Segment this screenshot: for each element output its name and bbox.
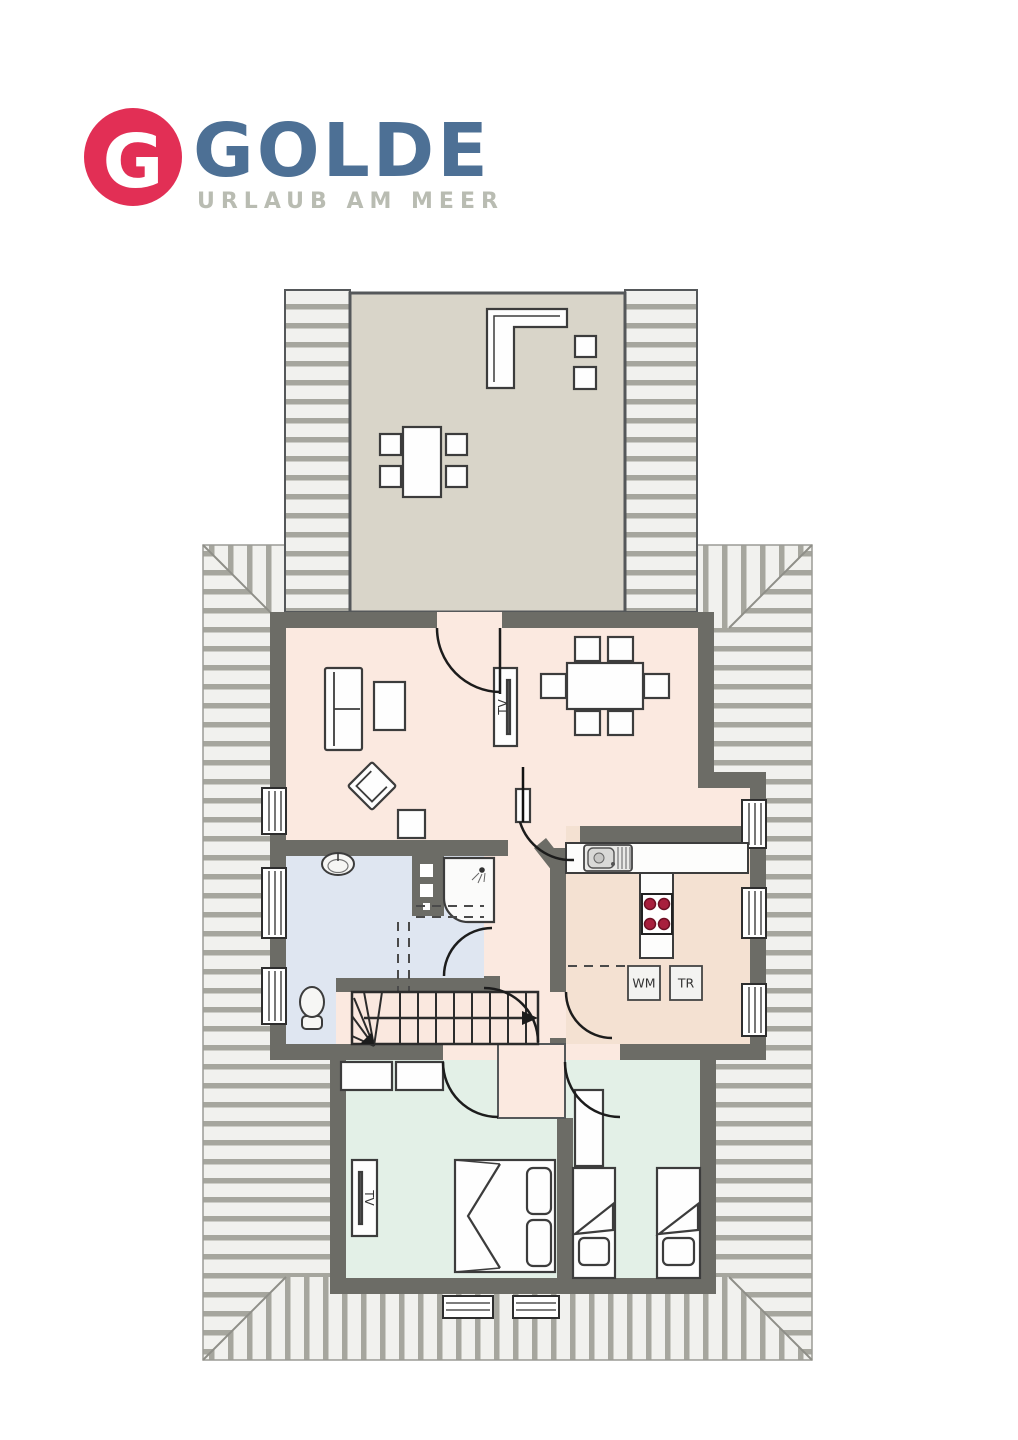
logo: G GOLDE URLAUB AM MEER [84, 108, 504, 214]
toilet [300, 987, 324, 1029]
double-bed [455, 1160, 555, 1272]
balcony-stool [575, 336, 596, 357]
window-living-left [262, 788, 286, 834]
brand-name: GOLDE [193, 108, 491, 194]
shower [444, 858, 494, 922]
vestibule-block [498, 1044, 565, 1118]
window-bath-left-lower [262, 968, 286, 1024]
roof-window-1 [443, 1296, 493, 1318]
balcony-table [403, 427, 441, 497]
balcony-roof-strip-right [625, 290, 697, 612]
side-table [398, 810, 425, 838]
single-bed-1 [573, 1168, 615, 1278]
balcony-chair [380, 434, 401, 455]
bedroom1-sideboard [396, 1062, 443, 1090]
bedroom1-sideboard [341, 1062, 392, 1090]
roof-window-2 [513, 1296, 559, 1318]
bedroom2-wardrobe [575, 1090, 603, 1166]
kitchen-sink [584, 845, 632, 871]
single-bed-2 [657, 1168, 700, 1278]
shower-head-icon [479, 867, 485, 873]
balcony-stool [574, 367, 596, 389]
sofa [325, 668, 362, 750]
tv-label-bedroom: TV [362, 1189, 376, 1206]
coffee-table [374, 682, 405, 730]
dining-chair [575, 711, 600, 735]
dining-chair [644, 674, 669, 698]
window-utility-right [742, 984, 766, 1036]
dryer-label: TR [677, 976, 695, 991]
dining-chair [575, 637, 600, 661]
staircase [352, 992, 538, 1046]
dining-chair [608, 637, 633, 661]
window-kitchen-right-2 [742, 888, 766, 938]
floor-plan-page: G GOLDE URLAUB AM MEER [0, 0, 1018, 1440]
window-kitchen-right-1 [742, 800, 766, 848]
tv-label-living: TV [496, 698, 510, 715]
window-bath-left-upper [262, 868, 286, 938]
dining-chair [541, 674, 566, 698]
balcony-roof-strip-left [285, 290, 350, 612]
balcony [285, 290, 697, 612]
dining-chair [608, 711, 633, 735]
dining-table [567, 663, 643, 709]
logo-monogram: G [103, 119, 164, 205]
brand-tagline: URLAUB AM MEER [197, 189, 504, 214]
balcony-chair [446, 434, 467, 455]
balcony-chair [380, 466, 401, 487]
balcony-chair [446, 466, 467, 487]
washbasin [322, 853, 354, 875]
washing-machine-label: WM [632, 976, 655, 991]
stove [642, 894, 672, 934]
